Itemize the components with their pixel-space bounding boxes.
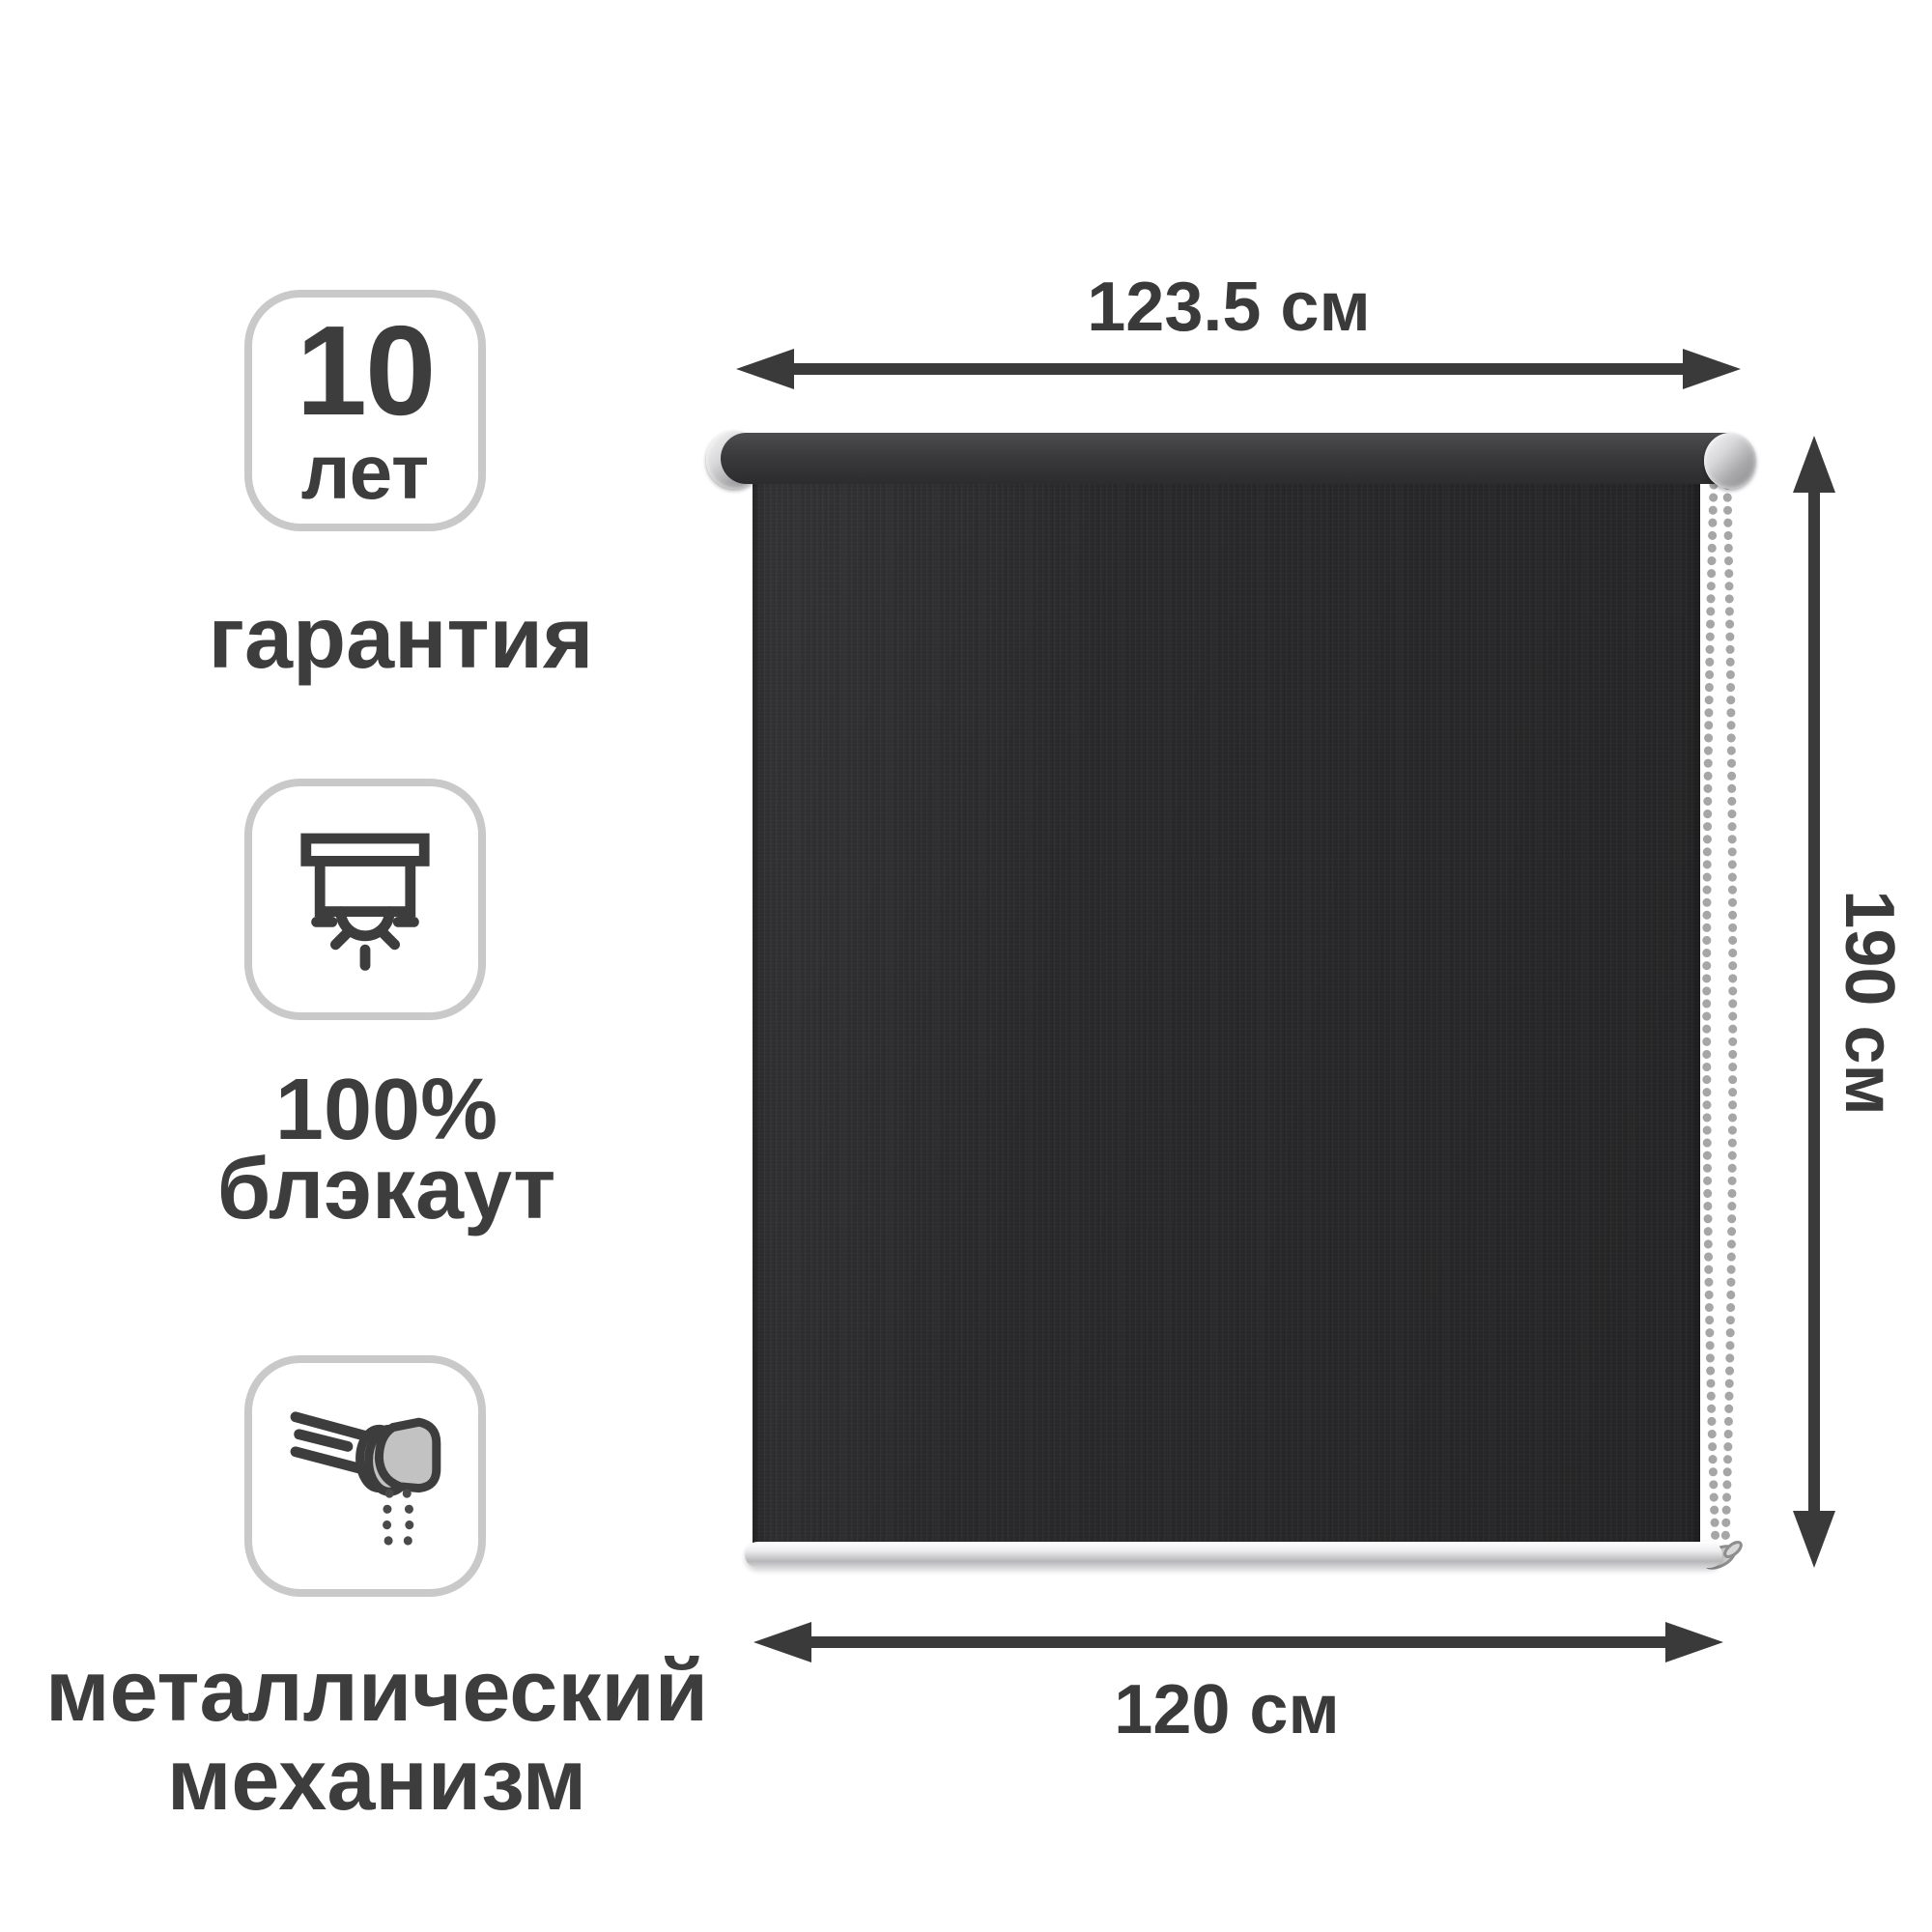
top-width-label: 123.5 см [997,272,1461,342]
warranty-unit: лет [301,434,429,511]
height-arrow [1789,433,1839,1571]
bottom-weight-bar [745,1542,1722,1568]
blackout-blind-icon [278,812,452,986]
roller-tube [721,433,1752,484]
tube-right-cap [1704,433,1756,489]
warranty-badge: 10 лет [244,290,486,531]
mechanism-label-line2: механизм [14,1737,739,1824]
blackout-badge [244,779,486,1020]
mechanism-badge [244,1355,486,1597]
bottom-width-label: 120 см [995,1675,1459,1745]
mechanism-label-line1: металлический [14,1648,739,1735]
bottom-width-arrow [752,1619,1725,1665]
blackout-label-line2: блэкаут [24,1146,749,1233]
bead-chain [1690,483,1777,1584]
product-infographic: 10 лет гарантия 100% блэкаут [0,0,1932,1932]
warranty-value: 10 [297,310,435,431]
height-label: 190 см [1831,771,1908,1235]
warranty-label: гарантия [39,595,763,682]
blind-fabric [753,454,1700,1548]
metal-mechanism-icon [278,1389,452,1563]
top-width-arrow [734,346,1743,392]
